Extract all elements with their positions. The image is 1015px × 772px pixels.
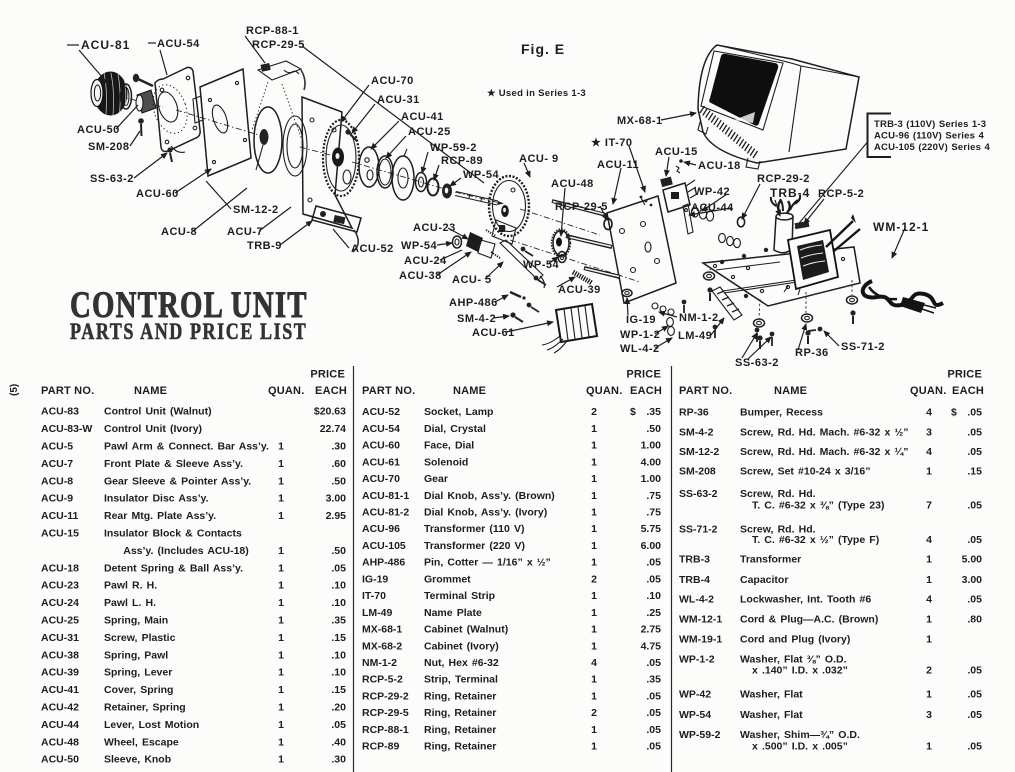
svg-text:1: 1 [278,580,284,592]
svg-text:1: 1 [591,674,597,686]
svg-text:.05: .05 [331,719,346,731]
svg-text:5.75: 5.75 [641,523,662,535]
svg-text:1: 1 [278,545,284,557]
svg-text:3: 3 [926,427,932,439]
svg-text:ACU-81-1: ACU-81-1 [362,490,409,502]
svg-text:1: 1 [278,493,284,505]
svg-text:Nut, Hex #6-32: Nut, Hex #6-32 [424,657,499,669]
svg-text:3.00: 3.00 [962,574,983,586]
svg-text:.05: .05 [646,657,661,669]
svg-text:2.95: 2.95 [326,510,347,522]
svg-text:1: 1 [926,634,932,646]
svg-text:SM-12-2: SM-12-2 [233,204,279,216]
svg-text:Wheel, Escape: Wheel, Escape [104,736,179,748]
svg-text:ACU-23: ACU-23 [413,222,456,234]
svg-text:ACU-31: ACU-31 [377,94,420,106]
svg-text:ACU-81-2: ACU-81-2 [362,507,409,519]
svg-text:.20: .20 [331,702,346,714]
svg-text:Dial Knob, Ass’y. (Brown): Dial Knob, Ass’y. (Brown) [424,490,555,502]
svg-text:SM-4-2: SM-4-2 [457,313,496,325]
svg-text:EACH: EACH [952,385,984,397]
svg-text:RCP-5-2: RCP-5-2 [818,188,864,200]
svg-text:Terminal Strip: Terminal Strip [424,590,495,602]
svg-text:ACU-52: ACU-52 [351,243,394,255]
svg-text:ACU-23: ACU-23 [41,580,79,592]
svg-text:1: 1 [926,553,932,565]
svg-text:RCP-29-5: RCP-29-5 [555,201,608,213]
svg-text:x .140” I.D. x .032”: x .140” I.D. x .032” [752,665,848,677]
svg-text:.05: .05 [331,562,346,574]
svg-text:RP-36: RP-36 [795,347,829,359]
svg-text:1: 1 [926,465,932,477]
svg-text:QUAN.: QUAN. [268,385,304,397]
svg-text:★ Used in Series 1-3: ★ Used in Series 1-3 [487,88,586,99]
svg-text:ACU-31: ACU-31 [41,632,79,644]
svg-text:ACU-8: ACU-8 [41,475,73,487]
svg-text:LM-49: LM-49 [362,607,392,619]
svg-text:Insulator Disc Ass’y.: Insulator Disc Ass’y. [104,493,209,505]
svg-text:PRICE: PRICE [310,369,345,381]
svg-text:ACU-83: ACU-83 [41,406,79,418]
svg-text:PRICE: PRICE [626,369,661,381]
svg-text:TRB-3: TRB-3 [679,553,710,565]
svg-text:PART NO.: PART NO. [362,385,415,397]
svg-text:Fig. E: Fig. E [521,41,565,57]
svg-text:ACU-8: ACU-8 [161,226,197,238]
svg-text:RCP-29-5: RCP-29-5 [362,707,409,719]
svg-text:1: 1 [278,736,284,748]
svg-text:.50: .50 [331,475,346,487]
svg-text:ACU-15: ACU-15 [41,528,79,540]
svg-text:1: 1 [591,523,597,535]
svg-text:.30: .30 [331,441,346,453]
svg-text:Cover, Spring: Cover, Spring [104,684,173,696]
svg-text:ACU-41: ACU-41 [401,111,444,123]
svg-text:Name Plate: Name Plate [424,607,482,619]
svg-text:QUAN.: QUAN. [910,385,946,397]
svg-text:1: 1 [591,540,597,552]
svg-text:SS-71-2: SS-71-2 [679,523,718,535]
svg-text:2: 2 [591,406,597,418]
svg-text:Cabinet (Ivory): Cabinet (Ivory) [424,640,499,652]
svg-text:1.00: 1.00 [641,440,662,452]
svg-text:Ring, Retainer: Ring, Retainer [424,724,496,736]
svg-text:6.00: 6.00 [641,540,662,552]
svg-text:ACU-42: ACU-42 [41,702,79,714]
svg-text:1: 1 [278,754,284,766]
svg-text:1: 1 [278,649,284,661]
svg-text:WP-1-2: WP-1-2 [620,329,660,341]
svg-text:ACU-50: ACU-50 [41,754,79,766]
svg-text:.15: .15 [331,684,346,696]
svg-text:NM-1-2: NM-1-2 [679,312,719,324]
svg-text:WP-1-2: WP-1-2 [679,654,715,666]
svg-text:Washer, Flat: Washer, Flat [740,688,803,700]
svg-text:1: 1 [591,473,597,485]
svg-text:Ring, Retainer: Ring, Retainer [424,741,496,753]
svg-text:IG-19: IG-19 [626,314,656,326]
svg-text:(5): (5) [9,384,20,396]
svg-text:IG-19: IG-19 [362,573,388,585]
svg-text:LM-49: LM-49 [678,330,712,342]
svg-text:ACU-54: ACU-54 [157,38,200,50]
svg-text:Strip, Terminal: Strip, Terminal [424,674,498,686]
svg-text:.50: .50 [331,545,346,557]
svg-text:.05: .05 [967,665,982,677]
svg-text:WM-12-1: WM-12-1 [679,613,722,625]
svg-text:Transformer (110 V): Transformer (110 V) [424,523,524,535]
svg-text:RCP-89: RCP-89 [441,155,483,167]
svg-text:.10: .10 [331,649,346,661]
svg-text:ACU-38: ACU-38 [399,270,442,282]
svg-text:WM-19-1: WM-19-1 [679,634,722,646]
svg-text:4: 4 [926,407,932,419]
svg-text:ACU-5: ACU-5 [41,441,73,453]
svg-text:4: 4 [926,534,932,546]
svg-text:1: 1 [278,719,284,731]
svg-text:Rear Mtg. Plate Ass’y.: Rear Mtg. Plate Ass’y. [104,510,216,522]
svg-text:SM-4-2: SM-4-2 [679,427,714,439]
svg-text:ACU-96: ACU-96 [362,523,400,535]
svg-text:1: 1 [591,423,597,435]
svg-text:MX-68-1: MX-68-1 [617,115,663,127]
svg-text:1: 1 [591,456,597,468]
svg-text:T. C. #6-32 x ½” (Type F): T. C. #6-32 x ½” (Type F) [752,534,879,546]
svg-text:RCP-89: RCP-89 [362,741,400,753]
svg-text:$: $ [951,407,957,419]
svg-text:.35: .35 [646,674,661,686]
svg-text:ACU-83-W: ACU-83-W [41,423,92,435]
svg-text:RCP-88-1: RCP-88-1 [362,724,409,736]
svg-text:Cord & Plug—A.C. (Brown): Cord & Plug—A.C. (Brown) [740,613,878,625]
svg-text:Socket, Lamp: Socket, Lamp [424,406,493,418]
svg-text:Cord and Plug (Ivory): Cord and Plug (Ivory) [740,634,850,646]
svg-text:Ass’y. (Includes ACU-18): Ass’y. (Includes ACU-18) [118,545,249,557]
svg-text:AHP-486: AHP-486 [449,297,498,309]
svg-text:WP-59-2: WP-59-2 [430,142,477,154]
svg-text:ACU-70: ACU-70 [371,75,414,87]
svg-text:ACU-15: ACU-15 [655,146,698,158]
svg-text:NAME: NAME [453,385,486,397]
svg-text:.05: .05 [646,724,661,736]
svg-text:RCP-29-2: RCP-29-2 [757,173,810,185]
svg-text:ACU-25: ACU-25 [408,126,451,138]
svg-text:2.75: 2.75 [641,624,662,636]
svg-text:3: 3 [926,709,932,721]
svg-text:Retainer, Spring: Retainer, Spring [104,702,186,714]
svg-text:2: 2 [591,707,597,719]
svg-text:ACU-41: ACU-41 [41,684,79,696]
svg-text:Dial Knob, Ass’y. (Ivory): Dial Knob, Ass’y. (Ivory) [424,507,547,519]
svg-text:.05: .05 [646,557,661,569]
svg-text:.30: .30 [331,754,346,766]
svg-text:22.74: 22.74 [320,423,346,435]
svg-text:Capacitor: Capacitor [740,574,788,586]
svg-text:x .500” I.D. x .005”: x .500” I.D. x .005” [752,741,848,753]
svg-text:1: 1 [278,510,284,522]
svg-text:$20.63: $20.63 [314,406,346,418]
svg-text:1: 1 [591,690,597,702]
svg-text:.05: .05 [646,707,661,719]
svg-text:.05: .05 [967,534,982,546]
svg-text:WM-12-1: WM-12-1 [873,220,929,234]
svg-text:1: 1 [278,597,284,609]
svg-text:ACU-7: ACU-7 [227,226,263,238]
svg-text:ACU-7: ACU-7 [41,458,73,470]
svg-text:Screw, Rd. Hd.: Screw, Rd. Hd. [740,488,816,500]
svg-text:Transformer: Transformer [740,553,801,565]
svg-text:.10: .10 [331,597,346,609]
svg-text:MX-68-2: MX-68-2 [362,640,402,652]
svg-text:4.75: 4.75 [641,640,662,652]
svg-text:$: $ [630,406,636,418]
svg-text:Transformer (220 V): Transformer (220 V) [424,540,525,552]
svg-text:Front Plate & Sleeve Ass’y.: Front Plate & Sleeve Ass’y. [104,458,243,470]
svg-text:.10: .10 [331,667,346,679]
svg-text:PART NO.: PART NO. [679,385,732,397]
svg-text:TRB-4: TRB-4 [679,574,710,586]
svg-text:.05: .05 [967,741,982,753]
svg-text:ACU-50: ACU-50 [77,124,120,136]
svg-text:SM-12-2: SM-12-2 [679,446,719,458]
svg-text:1: 1 [278,632,284,644]
svg-text:MX-68-1: MX-68-1 [362,624,402,636]
svg-text:1: 1 [591,741,597,753]
svg-text:1: 1 [591,624,597,636]
svg-text:.05: .05 [646,690,661,702]
svg-text:Detent Spring & Ball Ass’y.: Detent Spring & Ball Ass’y. [104,562,243,574]
svg-text:ACU-48: ACU-48 [41,736,79,748]
svg-text:SS-71-2: SS-71-2 [841,341,885,353]
svg-text:IT-70: IT-70 [362,590,386,602]
svg-text:1: 1 [278,684,284,696]
svg-text:Spring, Pawl: Spring, Pawl [104,649,168,661]
svg-text:Ring, Retainer: Ring, Retainer [424,707,496,719]
svg-text:.35: .35 [331,615,346,627]
svg-text:Solenoid: Solenoid [424,456,468,468]
svg-text:SM-208: SM-208 [88,141,130,153]
svg-text:1: 1 [278,475,284,487]
svg-text:RP-36: RP-36 [679,407,709,419]
svg-text:1: 1 [278,441,284,453]
svg-text:.80: .80 [967,613,982,625]
svg-text:.05: .05 [967,593,982,605]
svg-text:RCP-29-5: RCP-29-5 [252,39,305,51]
svg-text:NAME: NAME [774,385,807,397]
svg-text:ACU-105: ACU-105 [362,540,406,552]
svg-text:TRB-4: TRB-4 [770,186,810,200]
svg-text:★ IT-70: ★ IT-70 [591,137,632,149]
svg-text:.05: .05 [646,573,661,585]
svg-text:ACU-61: ACU-61 [362,456,400,468]
svg-text:Screw, Rd. Hd. Mach. #6-32 x ¼: Screw, Rd. Hd. Mach. #6-32 x ¼” [740,446,908,458]
svg-text:1: 1 [926,613,932,625]
svg-text:Pin, Cotter — 1/16” x ½”: Pin, Cotter — 1/16” x ½” [424,557,551,569]
svg-text:Gear: Gear [424,473,448,485]
svg-text:ACU-61: ACU-61 [472,327,515,339]
svg-text:1: 1 [591,590,597,602]
svg-text:Lockwasher, Int. Tooth #6: Lockwasher, Int. Tooth #6 [740,593,871,605]
svg-text:.15: .15 [967,465,982,477]
svg-text:Gear Sleeve & Pointer Ass’y.: Gear Sleeve & Pointer Ass’y. [104,475,251,487]
svg-text:.40: .40 [331,736,346,748]
svg-text:Control Unit (Walnut): Control Unit (Walnut) [104,406,212,418]
svg-text:PARTS AND PRICE LIST: PARTS AND PRICE LIST [70,320,307,344]
svg-text:WL-4-2: WL-4-2 [620,343,660,355]
svg-text:.75: .75 [646,507,661,519]
svg-text:4.00: 4.00 [641,456,662,468]
svg-text:ACU-39: ACU-39 [41,667,79,679]
svg-text:.35: .35 [646,406,661,418]
svg-text:ACU-39: ACU-39 [558,284,601,296]
svg-text:.05: .05 [967,500,982,512]
svg-text:1: 1 [591,490,597,502]
svg-text:Pawl Arm & Connect. Bar Ass’y.: Pawl Arm & Connect. Bar Ass’y. [104,441,269,453]
svg-text:5.00: 5.00 [962,553,983,565]
svg-text:PART NO.: PART NO. [41,385,94,397]
svg-text:Dial, Crystal: Dial, Crystal [424,423,486,435]
svg-text:SS-63-2: SS-63-2 [679,488,718,500]
svg-text:PRICE: PRICE [947,369,982,381]
svg-text:ACU-105 (220V) Series 4: ACU-105 (220V) Series 4 [874,142,990,153]
svg-text:.15: .15 [331,632,346,644]
svg-text:3.00: 3.00 [326,493,347,505]
svg-text:1: 1 [591,507,597,519]
svg-text:1: 1 [591,607,597,619]
svg-text:NAME: NAME [134,385,167,397]
svg-text:T. C. #6-32 x ⅜” (Type 23): T. C. #6-32 x ⅜” (Type 23) [752,500,884,512]
svg-text:1: 1 [591,640,597,652]
svg-text:Cabinet (Walnut): Cabinet (Walnut) [424,624,508,636]
svg-text:7: 7 [926,500,932,512]
svg-text:Screw, Plastic: Screw, Plastic [104,632,176,644]
svg-text:Washer, Flat: Washer, Flat [740,709,803,721]
svg-text:2: 2 [591,573,597,585]
svg-text:.10: .10 [331,580,346,592]
svg-text:ACU-70: ACU-70 [362,473,400,485]
svg-text:.05: .05 [967,446,982,458]
svg-text:.05: .05 [967,709,982,721]
svg-text:.05: .05 [967,427,982,439]
svg-text:ACU-38: ACU-38 [41,649,79,661]
svg-text:WP-54: WP-54 [463,169,500,181]
svg-text:4: 4 [926,593,932,605]
svg-text:.60: .60 [331,458,346,470]
svg-text:ACU-9: ACU-9 [41,493,73,505]
svg-text:Lever, Lost Motion: Lever, Lost Motion [104,719,199,731]
svg-text:ACU-60: ACU-60 [136,188,179,200]
svg-text:WP-54: WP-54 [401,240,438,252]
svg-text:SS-63-2: SS-63-2 [735,357,779,369]
svg-text:.10: .10 [646,590,661,602]
svg-text:4: 4 [591,657,597,669]
svg-text:1: 1 [591,557,597,569]
svg-text:Control Unit (Ivory): Control Unit (Ivory) [104,423,202,435]
svg-text:ACU-11: ACU-11 [41,510,79,522]
svg-text:ACU-48: ACU-48 [551,178,594,190]
svg-text:SM-208: SM-208 [679,465,716,477]
svg-text:Screw, Set #10-24 x 3/16”: Screw, Set #10-24 x 3/16” [740,465,871,477]
svg-text:Bumper, Recess: Bumper, Recess [740,407,823,419]
svg-text:ACU-24: ACU-24 [404,255,447,267]
svg-text:Face, Dial: Face, Dial [424,440,474,452]
svg-text:EACH: EACH [315,385,347,397]
svg-text:1: 1 [278,667,284,679]
svg-text:1: 1 [926,688,932,700]
svg-text:.05: .05 [967,407,982,419]
svg-text:Pawl R. H.: Pawl R. H. [104,580,157,592]
svg-text:NM-1-2: NM-1-2 [362,657,397,669]
svg-text:WP-42: WP-42 [679,688,711,700]
svg-text:1: 1 [278,562,284,574]
svg-text:.50: .50 [646,423,661,435]
svg-text:Spring, Main: Spring, Main [104,615,168,627]
svg-text:EACH: EACH [630,385,662,397]
svg-text:1: 1 [926,574,932,586]
svg-text:1: 1 [278,702,284,714]
svg-text:RCP-88-1: RCP-88-1 [246,25,299,37]
svg-text:TRB-3 (110V) Series 1-3: TRB-3 (110V) Series 1-3 [874,119,986,130]
svg-text:.05: .05 [967,688,982,700]
svg-text:WP-59-2: WP-59-2 [679,729,721,741]
svg-text:TRB-9: TRB-9 [247,240,282,252]
svg-text:.25: .25 [646,607,661,619]
svg-text:ACU-54: ACU-54 [362,423,400,435]
svg-text:ACU- 9: ACU- 9 [519,153,559,165]
svg-text:Washer, Shim—¾” O.D.: Washer, Shim—¾” O.D. [740,729,860,741]
svg-text:Spring, Lever: Spring, Lever [104,667,172,679]
svg-text:1: 1 [591,724,597,736]
svg-text:Insulator Block & Contacts: Insulator Block & Contacts [104,528,242,540]
svg-text:ACU-81: ACU-81 [81,38,130,52]
svg-text:1.00: 1.00 [641,473,662,485]
svg-text:Ring, Retainer: Ring, Retainer [424,690,496,702]
svg-text:RCP-29-2: RCP-29-2 [362,690,409,702]
svg-text:2: 2 [926,665,932,677]
svg-text:ACU-18: ACU-18 [41,562,79,574]
svg-text:ACU- 5: ACU- 5 [452,274,492,286]
svg-text:Sleeve, Knob: Sleeve, Knob [104,754,171,766]
svg-text:Screw, Rd. Hd. Mach. #6-32 x ½: Screw, Rd. Hd. Mach. #6-32 x ½” [740,427,908,439]
svg-text:AHP-486: AHP-486 [362,557,405,569]
svg-text:ACU-25: ACU-25 [41,615,79,627]
svg-text:4: 4 [926,446,932,458]
svg-text:.75: .75 [646,490,661,502]
svg-text:.05: .05 [646,741,661,753]
svg-text:1: 1 [278,458,284,470]
svg-text:ACU-60: ACU-60 [362,440,400,452]
svg-text:1: 1 [926,741,932,753]
svg-text:ACU-24: ACU-24 [41,597,79,609]
svg-text:SS-63-2: SS-63-2 [90,173,134,185]
svg-text:ACU-52: ACU-52 [362,406,400,418]
svg-text:WP-54: WP-54 [523,259,560,271]
svg-text:WP-42: WP-42 [694,186,730,198]
svg-text:QUAN.: QUAN. [586,385,622,397]
svg-text:RCP-5-2: RCP-5-2 [362,674,403,686]
svg-text:ACU-44: ACU-44 [41,719,79,731]
svg-text:1: 1 [278,615,284,627]
svg-text:ACU-18: ACU-18 [698,160,741,172]
svg-text:ACU-44: ACU-44 [691,202,734,214]
svg-text:1: 1 [591,440,597,452]
svg-text:ACU-11: ACU-11 [597,159,639,171]
svg-text:ACU-96 (110V) Series 4: ACU-96 (110V) Series 4 [874,131,984,142]
svg-text:WP-54: WP-54 [679,709,711,721]
svg-text:WL-4-2: WL-4-2 [679,593,714,605]
svg-text:Pawl L. H.: Pawl L. H. [104,597,156,609]
svg-text:Grommet: Grommet [424,573,471,585]
